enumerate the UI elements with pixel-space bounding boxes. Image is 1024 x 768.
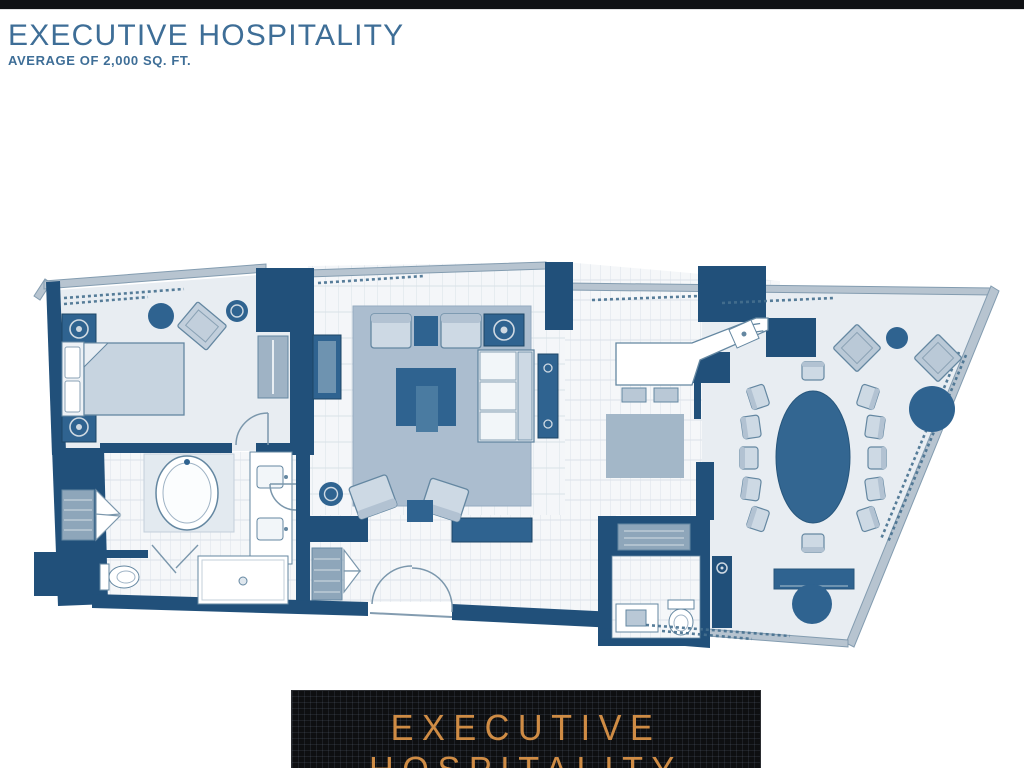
shower — [198, 556, 288, 604]
round-ottoman — [148, 303, 174, 329]
oval-table — [776, 391, 850, 523]
round-cafe-table — [792, 584, 832, 624]
luggage-bench — [618, 524, 690, 550]
armchair — [441, 314, 481, 348]
armchair — [371, 314, 411, 348]
kitchen-dining-mid-block — [766, 318, 816, 357]
bedroom-bottom-wall — [100, 443, 232, 453]
floor-plan-figure — [0, 0, 1024, 768]
living-kitchen-step-wall — [545, 262, 573, 330]
entry-console — [452, 518, 532, 542]
side-table — [226, 300, 248, 322]
closet-band-east — [290, 332, 314, 453]
soaking-tub — [156, 456, 218, 530]
powder-toilet — [668, 600, 694, 635]
bed-icon — [62, 342, 184, 416]
sofa — [478, 350, 534, 442]
closet-band-top — [256, 268, 314, 332]
ottoman — [407, 500, 433, 522]
round-side-table — [319, 482, 343, 506]
large-round-table — [909, 386, 955, 432]
footer-title-line1: EXECUTIVE — [304, 707, 749, 749]
kitchen-dining-top-block — [698, 266, 766, 322]
media-console — [538, 354, 558, 438]
footer-title-line2: HOSPITALITY — [304, 749, 749, 768]
toilet — [100, 564, 139, 590]
closet-rod — [258, 336, 288, 398]
coffee-table — [396, 368, 456, 432]
footer-banner: EXECUTIVE HOSPITALITY — [291, 690, 761, 768]
lamp-table — [484, 314, 524, 346]
bar-stool — [622, 388, 646, 402]
bath-entry-wall — [296, 452, 310, 608]
linen-shelves — [62, 490, 94, 540]
entry-closet-shelves — [312, 548, 342, 600]
living-entry-stub — [310, 516, 368, 542]
kitchen-rug — [606, 414, 684, 478]
wall-console — [313, 335, 341, 399]
side-table — [414, 316, 438, 346]
nightstand-lamp — [62, 314, 96, 344]
round-table — [886, 327, 908, 349]
bar-stool — [654, 388, 678, 402]
